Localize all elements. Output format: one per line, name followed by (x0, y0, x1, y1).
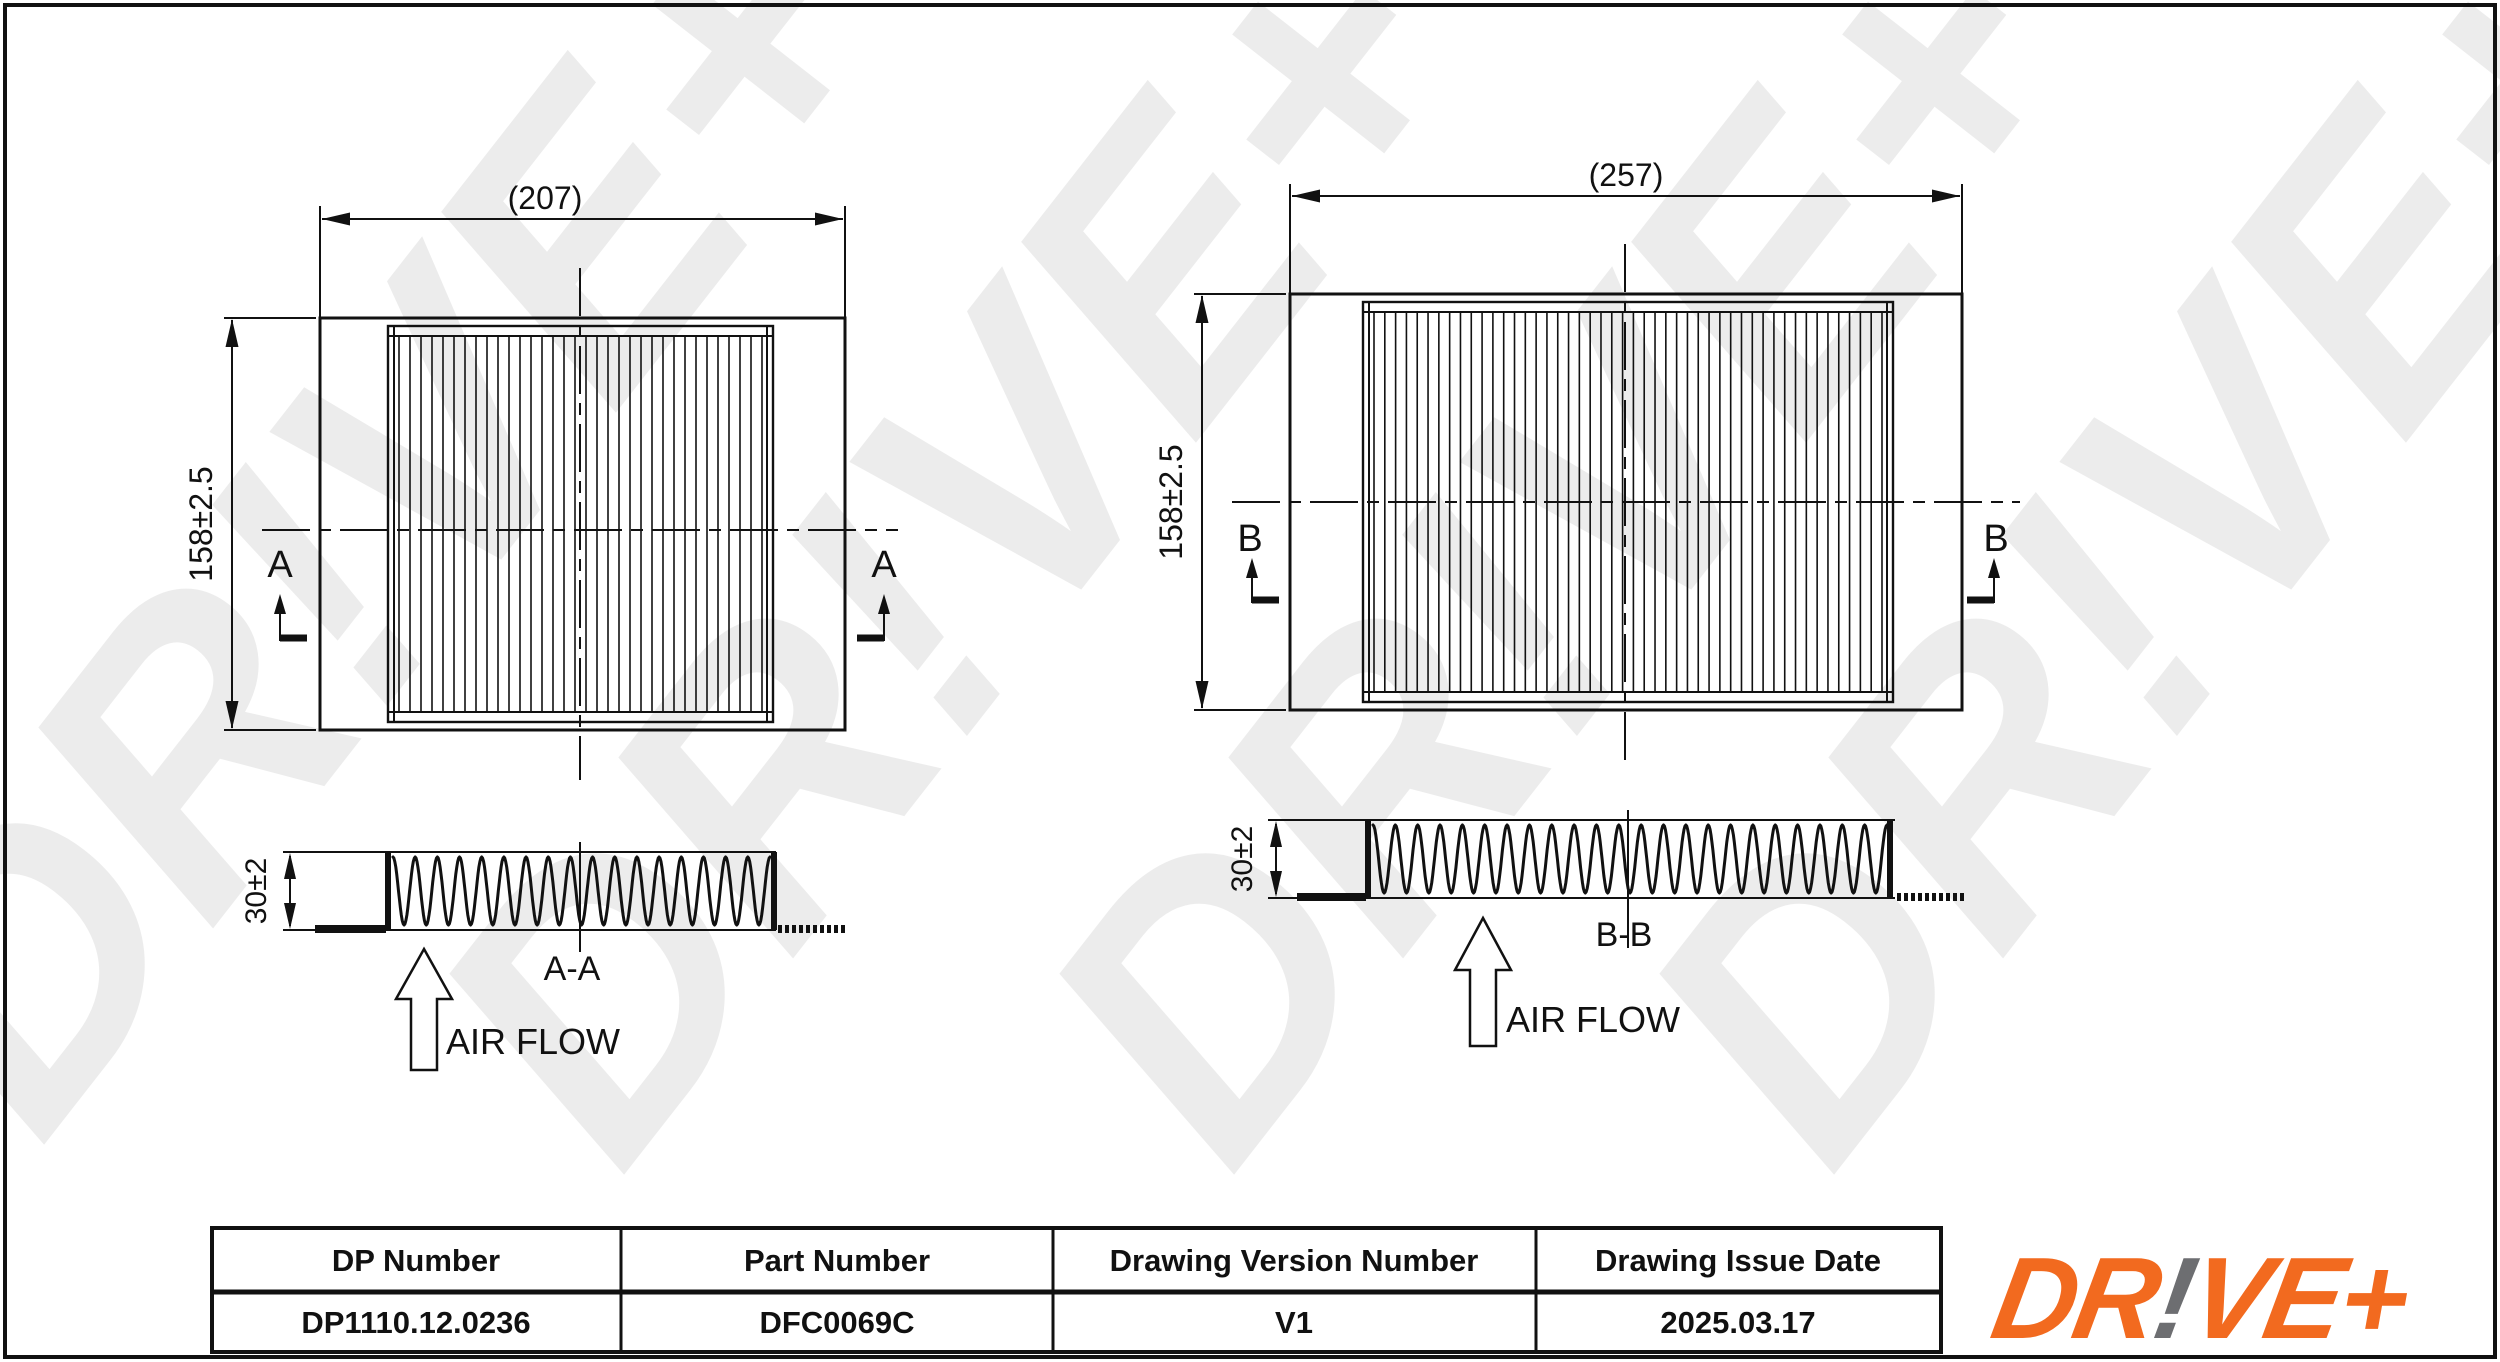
drive-plus-logo: DR!VE+ (1984, 1233, 2418, 1362)
section-letter: A (871, 544, 897, 586)
airflow-label: AIR FLOW (1506, 999, 1680, 1040)
logo-part-post: VE+ (2181, 1233, 2418, 1362)
header-issue-date: Drawing Issue Date (1595, 1243, 1881, 1278)
thickness-dim-text: 30±2 (240, 858, 273, 925)
value-dp-number: DP1110.12.0236 (301, 1305, 530, 1340)
header-part-number: Part Number (744, 1243, 930, 1278)
width-dim-text: (207) (508, 180, 583, 216)
section-letter: A (267, 544, 293, 586)
section-label: A-A (544, 950, 601, 988)
value-issue-date: 2025.03.17 (1660, 1305, 1815, 1340)
section-label: B-B (1596, 916, 1653, 954)
header-drawing-version: Drawing Version Number (1110, 1243, 1479, 1278)
height-dim-text: 158±2.5 (1153, 444, 1189, 559)
section-letter: B (1237, 518, 1262, 560)
arrowhead (1246, 558, 1258, 578)
header-dp-number: DP Number (332, 1243, 500, 1278)
section-letter: B (1983, 518, 2008, 560)
width-dim-text: (257) (1589, 157, 1664, 193)
height-dim-text: 158±2.5 (183, 466, 219, 581)
arrowhead (226, 319, 239, 347)
thickness-dim-text: 30±2 (1226, 826, 1259, 893)
title-block: DP Number Part Number Drawing Version Nu… (212, 1228, 1941, 1352)
logo-part-pre: DR (1984, 1233, 2171, 1362)
watermark-layer: DR!VE+ DR!VE+ DR!VE+ DR!VE+ (0, 0, 2500, 1230)
airflow-label: AIR FLOW (446, 1021, 620, 1062)
value-part-number: DFC0069C (759, 1305, 914, 1340)
engineering-drawing: DR!VE+ DR!VE+ DR!VE+ DR!VE+ (207) (0, 0, 2500, 1362)
value-drawing-version: V1 (1275, 1305, 1313, 1340)
logo-text: DR!VE+ (1984, 1233, 2418, 1362)
